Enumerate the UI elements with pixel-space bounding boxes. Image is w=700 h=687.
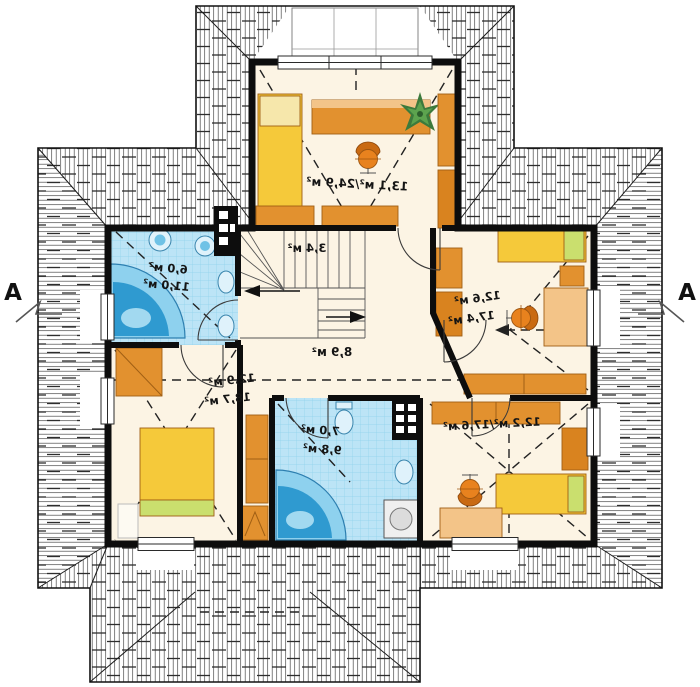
bed-bench — [140, 500, 214, 516]
area-label-bottom-bathroom-2: 9,8 м² — [302, 441, 342, 458]
area-label-bottom-bathroom-1: 7,0 м² — [300, 422, 340, 439]
chimney-block — [392, 400, 420, 440]
desk — [440, 508, 502, 538]
window-left-bedroom — [101, 378, 114, 424]
washing-machine-door — [390, 508, 412, 530]
window-right-bedroom — [587, 408, 600, 456]
nightstand — [560, 266, 584, 286]
dormer-terrace — [292, 8, 418, 56]
bed-pillow — [564, 228, 584, 260]
sink-icon — [218, 315, 234, 337]
rug — [118, 504, 138, 538]
section-letter: A — [4, 280, 22, 306]
bed — [140, 428, 214, 500]
section-letter: A — [678, 280, 696, 306]
desk-top — [312, 100, 430, 108]
window-left-bathroom — [101, 294, 114, 340]
corridor-closet — [242, 415, 268, 540]
cabinet — [256, 206, 314, 226]
toilet-tank — [336, 402, 352, 409]
window-right-room — [587, 290, 600, 346]
roof-recess — [450, 548, 518, 570]
sink-icon — [395, 460, 413, 484]
area-label-staircase: 3,4 м² — [288, 241, 327, 255]
bed-pillow — [260, 96, 300, 126]
window-bottom-right — [452, 538, 518, 551]
window-bottom-left — [138, 538, 194, 551]
floor-plan-page: 13,1 м²/24,9 м² 6,0 м² 11,0 м² 3,4 м² 8,… — [0, 0, 700, 687]
roof-recess — [136, 548, 194, 570]
dresser — [464, 374, 586, 394]
bed-pillow — [568, 476, 584, 512]
window-top-band — [278, 56, 432, 69]
sink-icon — [218, 271, 234, 293]
cabinet — [322, 206, 398, 226]
wardrobe — [562, 428, 588, 470]
chimney-block — [214, 206, 238, 256]
attic-floor-plan: 13,1 м²/24,9 м² 6,0 м² 11,0 м² 3,4 м² 8,… — [0, 0, 700, 687]
desk — [544, 288, 588, 346]
area-label-hall: 8,9 м² — [312, 345, 353, 359]
